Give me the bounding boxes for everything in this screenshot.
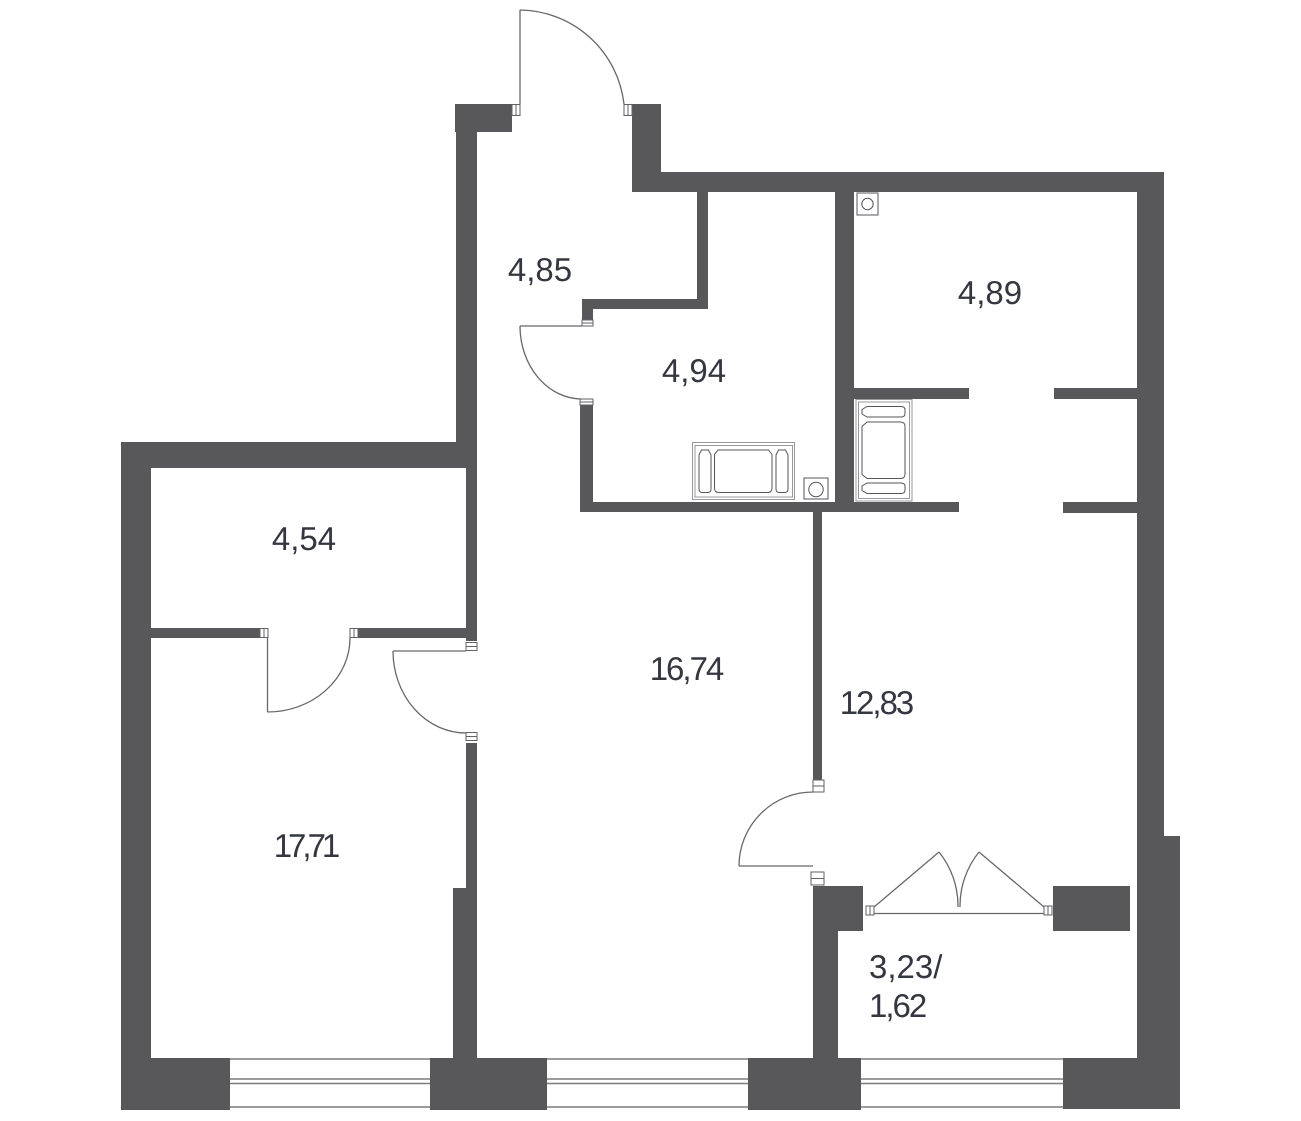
svg-text:4,85: 4,85 [508,251,572,288]
svg-text:4,94: 4,94 [662,352,726,389]
svg-text:4,89: 4,89 [958,274,1022,311]
svg-text:1,62: 1,62 [869,987,926,1024]
svg-text:3,23/: 3,23/ [869,948,943,985]
svg-text:16,74: 16,74 [650,650,724,687]
svg-text:4,54: 4,54 [272,520,336,557]
svg-text:17,71: 17,71 [274,827,339,864]
svg-text:12,83: 12,83 [840,684,913,721]
